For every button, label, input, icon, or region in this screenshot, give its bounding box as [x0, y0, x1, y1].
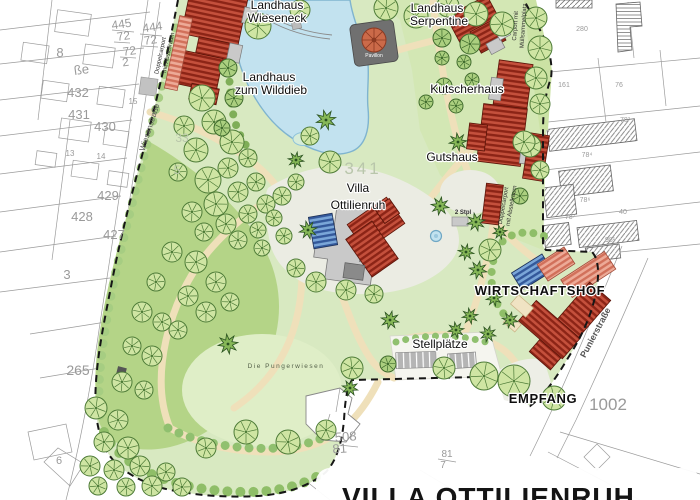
tree-icon	[460, 34, 480, 54]
tree-icon	[419, 95, 433, 109]
tree-icon	[374, 0, 398, 20]
tree-icon	[196, 302, 216, 322]
tree-icon	[316, 420, 336, 440]
site-plan-map: Landhaus Wieseneck Landhaus Serpentine L…	[0, 0, 700, 500]
tree-icon	[247, 173, 265, 191]
label-serpentine-2: Serpentine	[410, 14, 468, 28]
tree-icon	[229, 231, 247, 249]
tree-icon	[218, 158, 238, 178]
parcel-13: 13	[66, 149, 75, 158]
parcel-429: 429	[97, 188, 119, 203]
parcel-265: 265	[66, 362, 90, 378]
parcel-14: 14	[97, 152, 106, 161]
tree-icon	[470, 362, 498, 390]
tree-icon	[94, 432, 114, 452]
tree-icon	[228, 182, 248, 202]
tree-icon	[531, 161, 549, 179]
tree-icon	[513, 131, 535, 153]
tree-icon	[528, 36, 552, 60]
label-gutshaus: Gutshaus	[426, 150, 477, 164]
tree-icon	[479, 239, 501, 261]
tree-icon	[182, 202, 202, 222]
map-title: VILLA OTTILIENRUH	[342, 482, 635, 500]
tree-icon	[365, 285, 383, 303]
tree-icon	[196, 438, 216, 458]
tree-icon	[142, 346, 162, 366]
tree-icon	[266, 210, 282, 226]
parcel-6: 6	[56, 455, 62, 467]
tree-icon	[206, 272, 226, 292]
tree-icon	[123, 337, 141, 355]
tree-icon	[234, 420, 258, 444]
label-wirtschaftshof: WIRTSCHAFTSHOF	[475, 283, 605, 298]
tree-icon	[173, 478, 191, 496]
site-plan-page: Landhaus Wieseneck Landhaus Serpentine L…	[0, 0, 700, 500]
tree-icon	[525, 67, 547, 89]
parcel-431: 431	[68, 107, 90, 122]
label-pavillon: Pavillon	[365, 53, 383, 59]
tree-icon	[117, 478, 135, 496]
parcel-78-6: 78⁶	[580, 197, 591, 204]
tree-icon	[457, 55, 471, 69]
parcel-78-4: 78⁴	[582, 152, 593, 159]
parcel-33: 33	[175, 131, 189, 145]
tree-icon	[189, 85, 215, 111]
tree-icon	[169, 321, 187, 339]
parcel-98-1: 98¹	[605, 237, 616, 244]
parcel-3: 3	[63, 267, 70, 282]
parcel-427: 427	[103, 227, 125, 242]
tree-icon	[162, 242, 182, 262]
tree-icon	[117, 437, 139, 459]
tree-icon	[108, 410, 128, 430]
tree-icon	[336, 280, 356, 300]
parcel-76: 76	[615, 82, 623, 89]
tree-icon	[132, 302, 152, 322]
tree-icon	[306, 272, 326, 292]
tree-icon	[89, 477, 107, 495]
label-villa-1: Villa	[347, 181, 370, 195]
parcel-81b: 81	[441, 449, 453, 460]
parcel-428: 428	[71, 209, 93, 224]
label-kutscherhaus: Kutscherhaus	[430, 82, 503, 96]
parcel-430: 430	[94, 119, 116, 134]
label-2stpl: 2 Stpl	[455, 210, 472, 216]
label-villa-2: Ottilienruh	[331, 198, 386, 212]
tree-icon	[104, 460, 124, 480]
parcel-8: 8	[56, 45, 63, 60]
tree-icon	[239, 149, 257, 167]
tree-icon	[449, 99, 463, 113]
tree-icon	[287, 259, 305, 277]
tree-icon	[216, 214, 236, 234]
street-name-fragment: ße	[73, 61, 90, 78]
label-wilddieb-2: zum Wilddieb	[235, 83, 307, 97]
tree-icon	[319, 151, 341, 173]
tree-icon	[157, 463, 175, 481]
tree-icon	[219, 59, 237, 77]
parcel-432: 432	[67, 85, 89, 100]
label-pungerwiese: Die Pungerwiesen	[248, 363, 325, 370]
parcel-78-7: 78⁷	[565, 214, 576, 221]
tree-icon	[288, 174, 304, 190]
label-serpentine-1: Landhaus	[411, 1, 464, 15]
tree-icon	[276, 430, 300, 454]
parcel-15: 15	[129, 97, 138, 106]
label-wieseneck-2: Wieseneck	[248, 11, 308, 25]
parcel-72b: 72	[143, 32, 158, 48]
tree-icon	[147, 273, 165, 291]
parcel-40: 40	[619, 209, 627, 216]
parcel-341: 341	[344, 159, 381, 178]
parcel-72a: 72	[116, 28, 131, 44]
tree-icon	[490, 12, 514, 36]
parcel-81a: 81	[332, 441, 347, 457]
label-wilddieb-1: Landhaus	[243, 70, 296, 84]
tree-icon	[273, 187, 291, 205]
tree-icon	[239, 205, 257, 223]
tree-icon	[80, 456, 100, 476]
pavilion	[349, 19, 398, 67]
tree-icon	[214, 120, 230, 136]
tree-icon	[185, 251, 207, 273]
tree-icon	[221, 293, 239, 311]
parcel-161: 161	[558, 82, 570, 89]
tree-icon	[276, 228, 292, 244]
tree-icon	[341, 357, 363, 379]
parcel-5: 5	[174, 163, 181, 177]
tree-icon	[204, 192, 228, 216]
tree-icon	[112, 372, 132, 392]
tree-icon	[195, 167, 221, 193]
tree-icon	[178, 286, 198, 306]
tree-icon	[301, 127, 319, 145]
tree-icon	[135, 381, 153, 399]
tree-icon	[153, 313, 171, 331]
tree-icon	[380, 356, 396, 372]
tree-icon	[433, 357, 455, 379]
tree-icon	[254, 240, 270, 256]
parcel-280: 280	[576, 26, 588, 33]
tree-icon	[130, 456, 150, 476]
tree-icon	[142, 476, 162, 496]
tree-icon	[435, 51, 449, 65]
tree-icon	[525, 7, 547, 29]
tree-icon	[85, 397, 107, 419]
tree-icon	[250, 222, 266, 238]
label-stellplaetze: Stellplätze	[412, 337, 468, 351]
tree-icon	[195, 223, 213, 241]
fountain	[431, 231, 442, 242]
parcel-1002: 1002	[589, 395, 627, 414]
tree-icon	[433, 29, 451, 47]
label-empfang: EMPFANG	[509, 391, 577, 406]
parcel-78-3: 78³	[620, 117, 631, 124]
tree-icon	[530, 94, 550, 114]
